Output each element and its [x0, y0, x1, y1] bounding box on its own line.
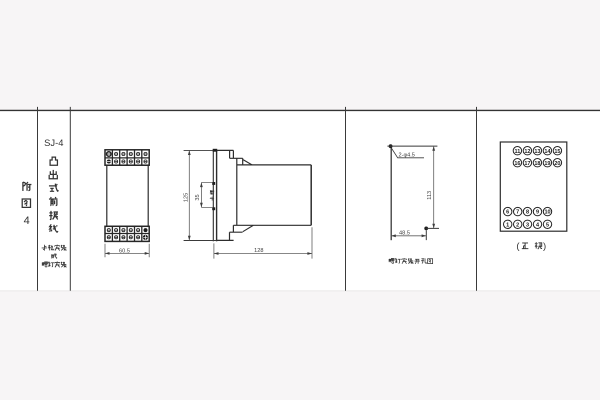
svg-text:48.5: 48.5 — [399, 230, 410, 236]
svg-text:2: 2 — [516, 222, 519, 228]
svg-text:17: 17 — [524, 161, 530, 167]
svg-text:): ) — [543, 241, 546, 252]
svg-text:7: 7 — [516, 210, 519, 216]
svg-text:5: 5 — [546, 222, 549, 228]
svg-text:4: 4 — [24, 215, 30, 227]
svg-text:11: 11 — [514, 149, 520, 155]
svg-text:3: 3 — [526, 222, 529, 228]
svg-text:SJ-4: SJ-4 — [44, 137, 63, 148]
svg-text:2-φ4.5: 2-φ4.5 — [399, 153, 415, 159]
svg-text:20: 20 — [554, 161, 560, 167]
svg-text:1: 1 — [506, 222, 509, 228]
svg-text:12: 12 — [524, 149, 530, 155]
svg-text:8: 8 — [526, 210, 529, 216]
svg-text:113: 113 — [427, 191, 433, 200]
svg-text:10: 10 — [544, 210, 550, 216]
svg-text:18: 18 — [534, 161, 540, 167]
svg-text:13: 13 — [534, 149, 540, 155]
svg-text:9: 9 — [536, 210, 539, 216]
svg-text:60.5: 60.5 — [119, 248, 130, 254]
svg-text:6: 6 — [506, 210, 509, 216]
svg-text:15: 15 — [554, 149, 560, 155]
svg-text:19: 19 — [544, 161, 550, 167]
svg-text:128: 128 — [254, 248, 263, 254]
svg-text:16: 16 — [514, 161, 520, 167]
svg-text:14: 14 — [544, 149, 551, 155]
svg-text:35: 35 — [195, 194, 201, 200]
svg-text:125: 125 — [183, 193, 189, 202]
